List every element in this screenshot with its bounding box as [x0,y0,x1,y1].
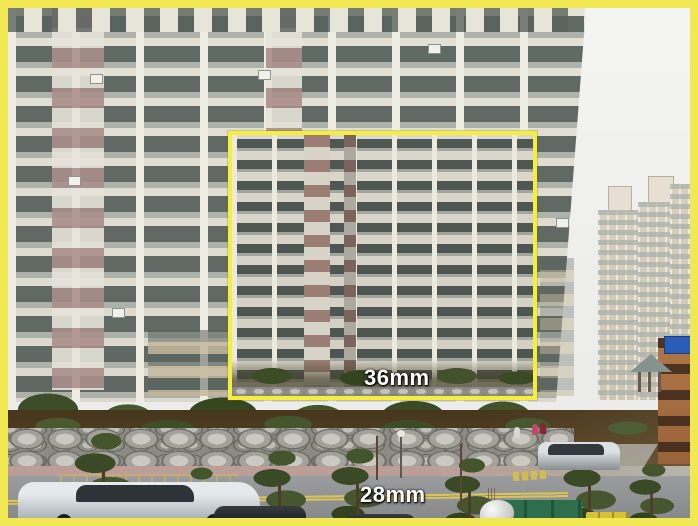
pedestrian [532,424,538,435]
ground-floor-windows [8,8,568,32]
ac-unit [258,70,271,80]
yellow-recycle-bins [586,512,628,518]
ac-unit [428,44,441,54]
gazebo [638,372,664,392]
ac-unit [112,308,125,318]
pedestrian [514,427,520,438]
pedestrian [540,423,546,434]
silver-suv-car [538,442,620,470]
bare-tree [376,436,378,480]
ac-unit [68,176,81,186]
yellow-photo-frame: 36mm 28mm [0,0,698,526]
car-windows [76,485,194,502]
inset-accent-column [304,135,330,396]
pine-tree [625,460,679,518]
inset-apartment-facade [232,135,533,396]
korean-sign [664,336,690,354]
label-36mm: 36mm [364,367,430,389]
dark-car [344,514,416,518]
inset-accent-column [344,135,356,396]
ac-unit [90,74,103,84]
dark-car [214,506,306,518]
inset-36mm-view: 36mm [228,131,537,400]
facade-accent-column [52,8,104,390]
ac-unit [556,218,569,228]
photo-28mm-view: 36mm 28mm [8,8,690,518]
brick-building [658,338,690,464]
white-trash-bag [480,500,514,518]
label-28mm: 28mm [360,484,426,506]
street-lamp [400,436,402,478]
car-windows [548,444,604,455]
bare-tree [460,444,462,508]
